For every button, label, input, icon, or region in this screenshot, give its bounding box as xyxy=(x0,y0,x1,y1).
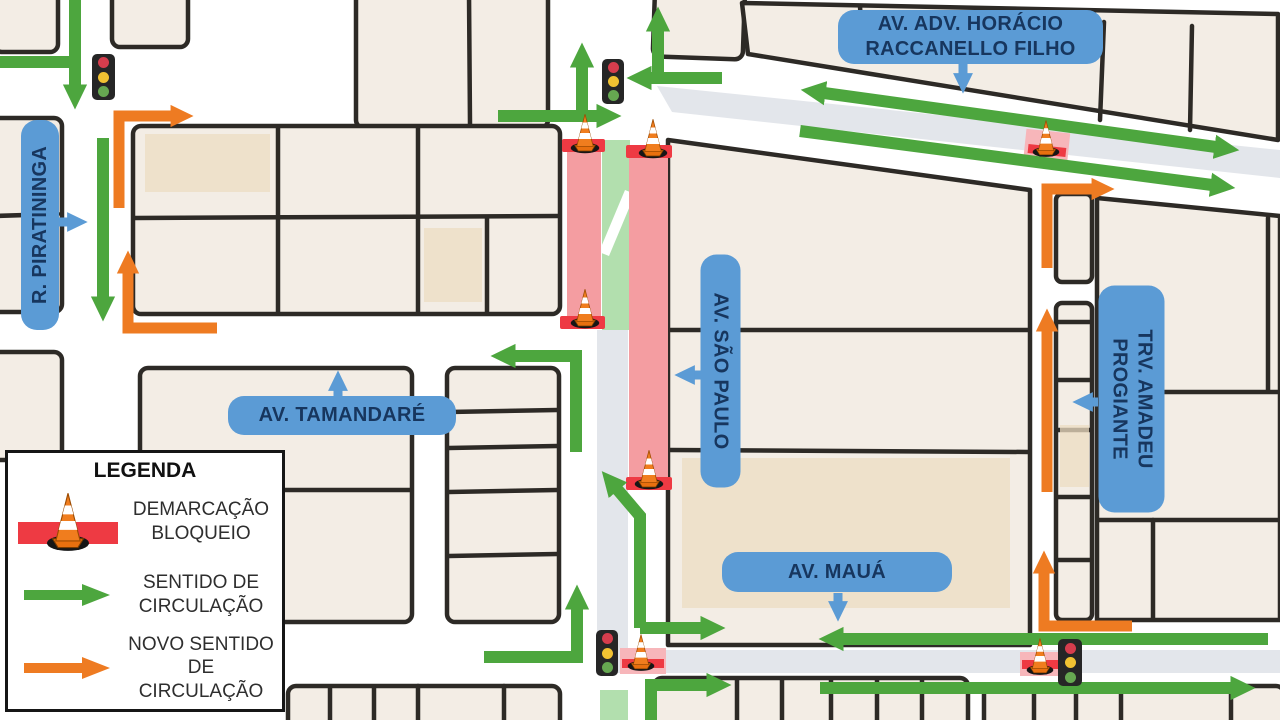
street-label-trv-line1: TRV. AMADEU xyxy=(1132,329,1157,468)
red-light xyxy=(98,57,109,68)
street-label-horacio-line1: AV. ADV. HORÁCIO xyxy=(878,12,1064,37)
yellow-light xyxy=(608,76,619,87)
green-arrow-icon xyxy=(14,583,126,607)
green-light xyxy=(1065,672,1076,683)
red-light xyxy=(1065,643,1076,654)
traffic-light-icon xyxy=(596,630,618,676)
yellow-light xyxy=(1065,657,1076,668)
street-label-sao-paulo: AV. SÃO PAULO xyxy=(701,255,741,488)
traffic-cone-icon xyxy=(639,119,668,158)
yellow-light xyxy=(602,648,613,659)
traffic-light-icon xyxy=(92,54,115,100)
traffic-light-icon xyxy=(602,59,624,104)
legend-label-direction: SENTIDO DE CIRCULAÇÃO xyxy=(126,571,276,619)
legend-label-blockade: DEMARCAÇÃO BLOQUEIO xyxy=(126,498,276,546)
street-label-trv-line2: PROGIANTE xyxy=(1107,338,1132,460)
legend-item-blockade: DEMARCAÇÃO BLOQUEIO xyxy=(14,485,276,558)
traffic-change-map: AV. ADV. HORÁCIO RACCANELLO FILHO R. PIR… xyxy=(0,0,1280,720)
red-light xyxy=(602,633,613,644)
orange-arrow-icon xyxy=(14,656,126,680)
street-label-horacio-line2: RACCANELLO FILHO xyxy=(865,37,1075,62)
green-light xyxy=(602,662,613,673)
street-label-piratininga: R. PIRATININGA xyxy=(21,120,59,330)
legend-title: LEGENDA xyxy=(14,459,276,483)
green-light xyxy=(98,86,109,97)
street-label-maua: AV. MAUÁ xyxy=(722,552,952,592)
traffic-cone-on-red-bar-icon xyxy=(14,490,126,554)
blocked-lane-east xyxy=(629,145,668,480)
legend-item-direction: SENTIDO DE CIRCULAÇÃO xyxy=(14,558,276,631)
legend-label-new-direction: NOVO SENTIDO DE CIRCULAÇÃO xyxy=(126,633,276,704)
street-label-tamandare: AV. TAMANDARÉ xyxy=(228,396,456,435)
traffic-light-icon xyxy=(1058,639,1082,686)
legend-item-new-direction: NOVO SENTIDO DE CIRCULAÇÃO xyxy=(14,632,276,705)
legend-panel: LEGENDA DEMARCAÇÃO BLOQUEIO SENTIDO DE C… xyxy=(5,450,285,712)
open-lane-green-south xyxy=(600,690,628,720)
street-label-trv-amadeu: TRV. AMADEU PROGIANTE xyxy=(1099,286,1165,513)
red-light xyxy=(608,62,619,73)
street-label-horacio: AV. ADV. HORÁCIO RACCANELLO FILHO xyxy=(838,10,1103,64)
road-maua xyxy=(598,650,1280,673)
yellow-light xyxy=(98,72,109,83)
green-light xyxy=(608,90,619,101)
